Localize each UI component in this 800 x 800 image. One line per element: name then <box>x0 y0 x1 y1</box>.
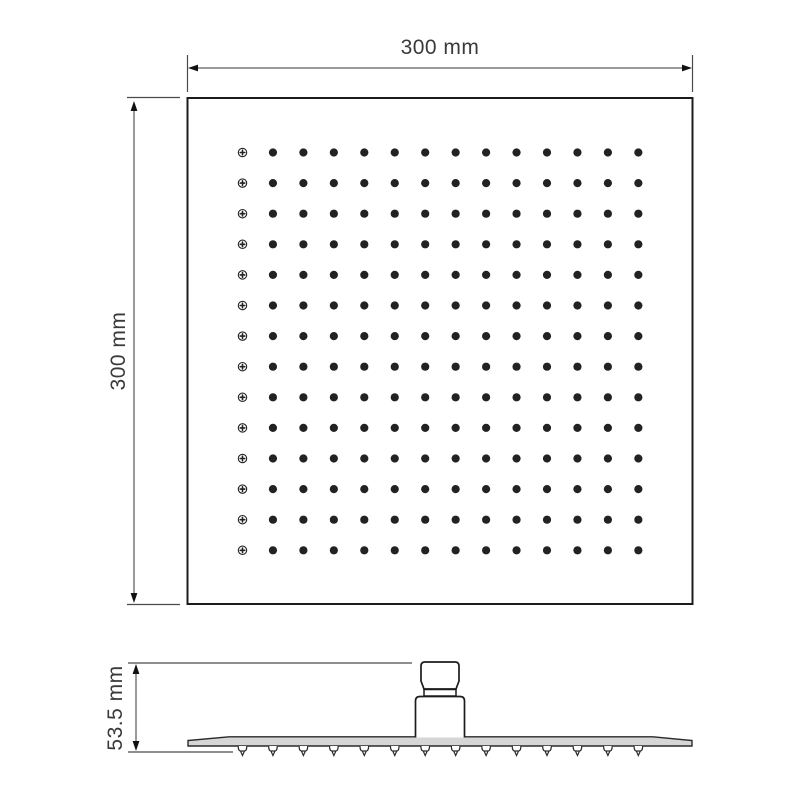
side-nozzle <box>604 746 613 756</box>
nozzle-dot <box>543 240 551 248</box>
nozzle-dot <box>391 393 399 401</box>
nozzle-dot <box>573 179 581 187</box>
nozzle-dot <box>482 485 490 493</box>
nozzle-dot <box>634 301 642 309</box>
nozzle-dot <box>330 424 338 432</box>
nozzle-dot <box>634 546 642 554</box>
nozzle-dot <box>604 546 612 554</box>
nozzle-dot <box>330 546 338 554</box>
nozzle-dot <box>604 271 612 279</box>
nozzle-dot <box>573 240 581 248</box>
nozzle-dot <box>391 148 399 156</box>
nozzle-dot <box>634 271 642 279</box>
nozzle-dot <box>269 363 277 371</box>
nozzle-dot <box>512 240 520 248</box>
nozzle-dot <box>391 271 399 279</box>
nozzle-dot <box>512 424 520 432</box>
nozzle-dot <box>573 301 581 309</box>
nozzle-dot <box>604 179 612 187</box>
nozzle-dot <box>391 301 399 309</box>
crosshair-nozzle-icon <box>238 301 246 309</box>
nozzle-dot <box>573 363 581 371</box>
nozzle-dot <box>330 210 338 218</box>
nozzle-dot <box>360 363 368 371</box>
nozzle-dot <box>421 485 429 493</box>
nozzle-dot <box>634 424 642 432</box>
nozzle-dot <box>604 301 612 309</box>
nozzle-dot <box>391 546 399 554</box>
nozzle-dot <box>299 332 307 340</box>
nozzle-dot <box>482 454 490 462</box>
left-height-label: 300 mm <box>105 301 133 401</box>
nozzle-dot <box>330 454 338 462</box>
nozzle-dot <box>299 271 307 279</box>
nozzle-dot <box>512 179 520 187</box>
crosshair-nozzle-icon <box>238 516 246 524</box>
nozzle-dot <box>421 424 429 432</box>
nozzle-dot <box>269 546 277 554</box>
nozzle-dot <box>421 454 429 462</box>
nozzle-dot <box>421 546 429 554</box>
nozzle-dot <box>269 332 277 340</box>
nozzle-dot <box>573 210 581 218</box>
side-nozzle <box>360 746 369 756</box>
nozzle-dot <box>269 148 277 156</box>
nozzle-dot <box>330 363 338 371</box>
nozzle-dot <box>543 332 551 340</box>
nozzle-dot <box>299 485 307 493</box>
nozzle-dot <box>452 516 460 524</box>
nozzle-dot <box>512 546 520 554</box>
nozzle-dot <box>360 516 368 524</box>
nozzle-dot <box>634 148 642 156</box>
nozzle-dot <box>604 332 612 340</box>
nozzle-dot <box>360 485 368 493</box>
side-height-label: 53.5 mm <box>102 658 130 758</box>
nozzle-dot <box>482 301 490 309</box>
nozzle-dot <box>543 516 551 524</box>
nozzle-dot <box>573 271 581 279</box>
side-nozzles <box>238 746 642 756</box>
nozzle-dot <box>452 210 460 218</box>
nozzle-dot <box>604 210 612 218</box>
arrowhead-bottom <box>131 593 138 603</box>
nozzle-grid <box>238 148 642 554</box>
nozzle-dot <box>452 454 460 462</box>
nozzle-dot <box>330 301 338 309</box>
nozzle-dot <box>360 148 368 156</box>
nozzle-dot <box>452 393 460 401</box>
nozzle-dot <box>573 546 581 554</box>
plate-profile <box>188 737 692 746</box>
nozzle-dot <box>269 454 277 462</box>
arrowhead-top <box>133 664 140 674</box>
nozzle-dot <box>604 393 612 401</box>
nozzle-dot <box>360 393 368 401</box>
nozzle-dot <box>482 516 490 524</box>
nozzle-dot <box>482 363 490 371</box>
nozzle-dot <box>269 271 277 279</box>
nozzle-dot <box>269 210 277 218</box>
side-view <box>188 662 692 756</box>
nozzle-dot <box>573 148 581 156</box>
nozzle-dot <box>452 424 460 432</box>
nozzle-dot <box>482 210 490 218</box>
nozzle-dot <box>634 179 642 187</box>
nozzle-dot <box>452 301 460 309</box>
nozzle-dot <box>512 363 520 371</box>
side-nozzle <box>451 746 460 756</box>
nozzle-dot <box>299 363 307 371</box>
drawing-stage: 300 mm 300 mm 53.5 mm <box>0 0 800 800</box>
side-nozzle <box>482 746 491 756</box>
nozzle-dot <box>512 210 520 218</box>
nozzle-dot <box>269 393 277 401</box>
nozzle-dot <box>421 332 429 340</box>
crosshair-nozzle-icon <box>238 393 246 401</box>
nozzle-dot <box>330 485 338 493</box>
nozzle-dot <box>299 240 307 248</box>
nozzle-dot <box>269 485 277 493</box>
nozzle-dot <box>452 271 460 279</box>
nozzle-dot <box>482 271 490 279</box>
nozzle-dot <box>512 271 520 279</box>
nozzle-dot <box>360 179 368 187</box>
nozzle-dot <box>269 301 277 309</box>
nozzle-dot <box>452 240 460 248</box>
nozzle-dot <box>421 179 429 187</box>
nozzle-dot <box>634 454 642 462</box>
nozzle-dot <box>391 516 399 524</box>
nozzle-dot <box>543 546 551 554</box>
nozzle-dot <box>299 210 307 218</box>
nozzle-dot <box>421 210 429 218</box>
nozzle-dot <box>604 454 612 462</box>
connector-collar <box>424 690 456 697</box>
nozzle-dot <box>573 454 581 462</box>
nozzle-dot <box>543 148 551 156</box>
nozzle-dot <box>421 148 429 156</box>
nozzle-dot <box>452 363 460 371</box>
nozzle-dot <box>269 516 277 524</box>
nozzle-dot <box>299 546 307 554</box>
nozzle-dot <box>452 485 460 493</box>
nozzle-dot <box>512 301 520 309</box>
nozzle-dot <box>360 546 368 554</box>
nozzle-dot <box>269 424 277 432</box>
nozzle-dot <box>634 393 642 401</box>
side-nozzle <box>421 746 430 756</box>
crosshair-nozzle-icon <box>238 363 246 371</box>
nozzle-dot <box>360 210 368 218</box>
nozzle-dot <box>604 516 612 524</box>
nozzle-dot <box>330 393 338 401</box>
nozzle-dot <box>512 516 520 524</box>
crosshair-nozzle-icon <box>238 454 246 462</box>
nozzle-dot <box>482 179 490 187</box>
side-nozzle <box>390 746 399 756</box>
nozzle-dot <box>391 332 399 340</box>
crosshair-nozzle-icon <box>238 424 246 432</box>
nozzle-dot <box>482 240 490 248</box>
nozzle-dot <box>482 332 490 340</box>
nozzle-dot <box>421 240 429 248</box>
nozzle-dot <box>299 393 307 401</box>
nozzle-dot <box>391 210 399 218</box>
nozzle-dot <box>421 363 429 371</box>
arrowhead-right <box>682 65 692 72</box>
nozzle-dot <box>360 240 368 248</box>
nozzle-dot <box>573 516 581 524</box>
nozzle-dot <box>421 516 429 524</box>
nozzle-dot <box>634 485 642 493</box>
crosshair-nozzle-icon <box>238 485 246 493</box>
nozzle-dot <box>634 363 642 371</box>
crosshair-nozzle-icon <box>238 210 246 218</box>
nozzle-dot <box>543 424 551 432</box>
nozzle-dot <box>543 301 551 309</box>
side-nozzle <box>330 746 339 756</box>
nozzle-dot <box>543 179 551 187</box>
crosshair-nozzle-icon <box>238 148 246 156</box>
nozzle-dot <box>330 179 338 187</box>
nozzle-dot <box>269 179 277 187</box>
nozzle-dot <box>391 424 399 432</box>
nozzle-dot <box>452 179 460 187</box>
arrowhead-top <box>131 101 138 111</box>
arrowhead-bottom <box>133 741 140 751</box>
nozzle-dot <box>604 485 612 493</box>
nozzle-dot <box>543 363 551 371</box>
nozzle-dot <box>360 454 368 462</box>
nozzle-dot <box>330 148 338 156</box>
connector-base <box>416 697 465 738</box>
nozzle-dot <box>512 454 520 462</box>
nozzle-dot <box>452 546 460 554</box>
nozzle-dot <box>482 393 490 401</box>
crosshair-nozzle-icon <box>238 179 246 187</box>
nozzle-dot <box>482 148 490 156</box>
nozzle-dot <box>604 240 612 248</box>
nozzle-dot <box>573 332 581 340</box>
side-nozzle <box>634 746 643 756</box>
left-dimension <box>127 98 180 605</box>
nozzle-dot <box>512 332 520 340</box>
nozzle-dot <box>543 485 551 493</box>
nozzle-dot <box>543 271 551 279</box>
nozzle-dot <box>299 179 307 187</box>
crosshair-nozzle-icon <box>238 332 246 340</box>
nozzle-dot <box>573 393 581 401</box>
top-width-label: 300 mm <box>390 34 490 62</box>
nozzle-dot <box>604 424 612 432</box>
arrowhead-left <box>188 65 198 72</box>
connector-nut <box>421 662 459 689</box>
nozzle-dot <box>604 363 612 371</box>
nozzle-dot <box>421 301 429 309</box>
nozzle-dot <box>299 301 307 309</box>
nozzle-dot <box>634 516 642 524</box>
nozzle-dot <box>330 332 338 340</box>
side-nozzle <box>299 746 308 756</box>
crosshair-nozzle-icon <box>238 271 246 279</box>
nozzle-dot <box>360 271 368 279</box>
nozzle-dot <box>634 210 642 218</box>
nozzle-dot <box>391 240 399 248</box>
nozzle-dot <box>330 516 338 524</box>
nozzle-dot <box>452 148 460 156</box>
nozzle-dot <box>299 516 307 524</box>
nozzle-dot <box>573 485 581 493</box>
nozzle-dot <box>512 148 520 156</box>
nozzle-dot <box>299 454 307 462</box>
side-nozzle <box>269 746 278 756</box>
nozzle-dot <box>330 240 338 248</box>
nozzle-dot <box>634 240 642 248</box>
nozzle-dot <box>512 393 520 401</box>
nozzle-dot <box>391 485 399 493</box>
nozzle-dot <box>543 454 551 462</box>
nozzle-dot <box>391 454 399 462</box>
nozzle-dot <box>269 240 277 248</box>
nozzle-dot <box>299 148 307 156</box>
nozzle-dot <box>360 332 368 340</box>
side-nozzle <box>543 746 552 756</box>
nozzle-dot <box>543 393 551 401</box>
shower-head-outline <box>188 98 693 604</box>
nozzle-dot <box>482 424 490 432</box>
nozzle-dot <box>634 332 642 340</box>
nozzle-dot <box>604 148 612 156</box>
nozzle-dot <box>391 363 399 371</box>
nozzle-dot <box>391 179 399 187</box>
nozzle-dot <box>512 485 520 493</box>
side-nozzle <box>512 746 521 756</box>
side-nozzle <box>573 746 582 756</box>
nozzle-dot <box>421 271 429 279</box>
nozzle-dot <box>482 546 490 554</box>
nozzle-dot <box>360 301 368 309</box>
crosshair-nozzle-icon <box>238 546 246 554</box>
nozzle-dot <box>543 210 551 218</box>
nozzle-dot <box>299 424 307 432</box>
nozzle-dot <box>573 424 581 432</box>
side-nozzle <box>238 746 247 756</box>
nozzle-dot <box>360 424 368 432</box>
nozzle-dot <box>421 393 429 401</box>
nozzle-dot <box>452 332 460 340</box>
nozzle-dot <box>330 271 338 279</box>
crosshair-nozzle-icon <box>238 240 246 248</box>
